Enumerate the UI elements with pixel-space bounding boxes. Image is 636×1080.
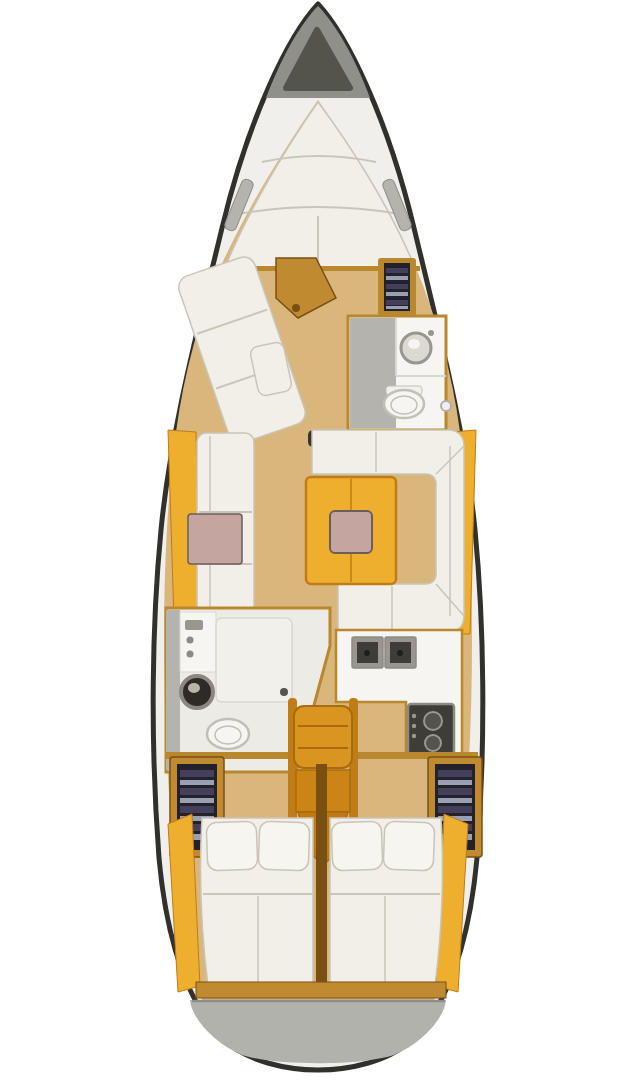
stove-burner-bottom — [425, 735, 441, 751]
boat-layout-svg — [0, 0, 636, 1080]
salon-table-centerpiece — [330, 511, 372, 553]
boat-layout-plan — [0, 0, 636, 1080]
port-settee-table — [188, 514, 242, 564]
wardrobe-handle — [292, 304, 300, 312]
shelf-locker-forward — [378, 258, 416, 316]
stove-knobs — [412, 714, 416, 738]
shower-drain — [280, 688, 288, 696]
stern-foot-trim — [196, 982, 446, 998]
aft-berth-starboard — [330, 818, 442, 986]
aft-cabin-partition — [316, 764, 327, 990]
pillow — [383, 821, 435, 871]
aft-head-shower-pan — [216, 618, 292, 702]
aft-head-hull-panel — [166, 610, 180, 770]
pillow — [331, 821, 383, 871]
transom — [190, 1000, 446, 1063]
galley-sink-left — [352, 637, 383, 668]
porthole-starboard — [441, 401, 451, 411]
step-top — [294, 706, 352, 768]
galley-stove — [408, 704, 454, 754]
forward-head — [348, 316, 446, 430]
aft-berth-port — [201, 818, 313, 986]
forward-head-faucet — [428, 330, 434, 336]
pillow — [206, 821, 258, 871]
pillow — [258, 821, 310, 871]
salon-table — [306, 477, 396, 584]
galley-sink-right — [385, 637, 416, 668]
stove-burner-top — [424, 712, 442, 730]
